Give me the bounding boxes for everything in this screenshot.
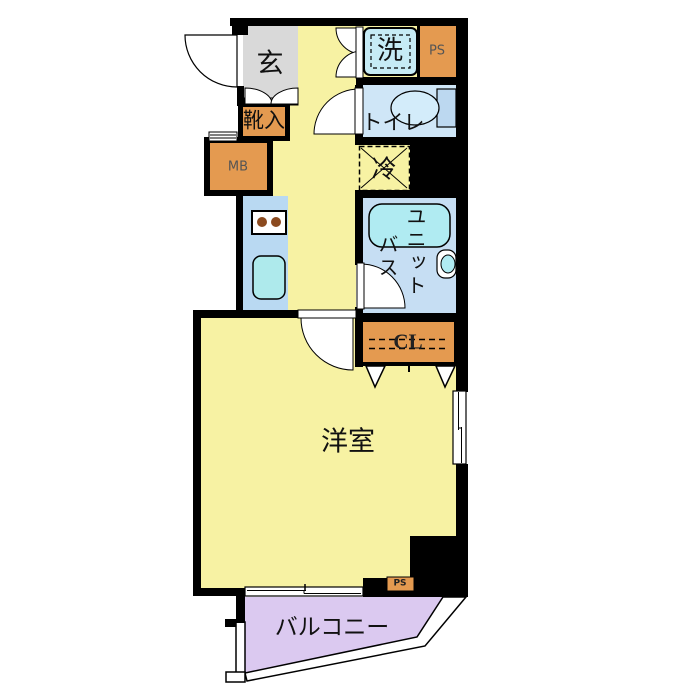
balcony-railing-foot: [226, 672, 245, 682]
floor-plan: 玄 靴入 MB PS 洗 トイレ 冷 ユニット バス CL 洋室 バルコニー P…: [0, 0, 700, 700]
kitchen-sink-icon: [253, 256, 285, 299]
label-balcony: バルコニー: [275, 617, 390, 640]
balcony-railing-left: [236, 622, 245, 678]
label-western-room: 洋室: [321, 429, 375, 456]
bath-basin-bowl: [441, 255, 455, 273]
burner-icon: [271, 217, 281, 227]
floor-plan-drawing: [0, 0, 700, 700]
label-shoe-storage: 靴入: [243, 111, 285, 132]
label-refrigerator: 冷: [371, 157, 396, 182]
label-unit-bath: ユニット: [405, 206, 425, 308]
burner-icon: [257, 217, 267, 227]
label-toilet: トイレ: [362, 113, 425, 134]
label-genkan: 玄: [257, 51, 284, 78]
label-meter-box: MB: [228, 161, 248, 174]
label-pipe-space: PS: [429, 45, 445, 58]
meter-box-louver: [209, 132, 237, 141]
label-washer: 洗: [377, 38, 403, 64]
bath-door-leaf: [357, 263, 364, 309]
label-pipe-space-small: PS: [393, 580, 406, 589]
label-closet: CL: [393, 332, 422, 353]
washer-door-leaf: [356, 27, 363, 78]
entrance-door-arc: [185, 35, 237, 87]
label-unit-bath: バス: [377, 234, 397, 286]
toilet-tank-icon: [437, 89, 456, 127]
room-door-leaf: [298, 310, 356, 318]
